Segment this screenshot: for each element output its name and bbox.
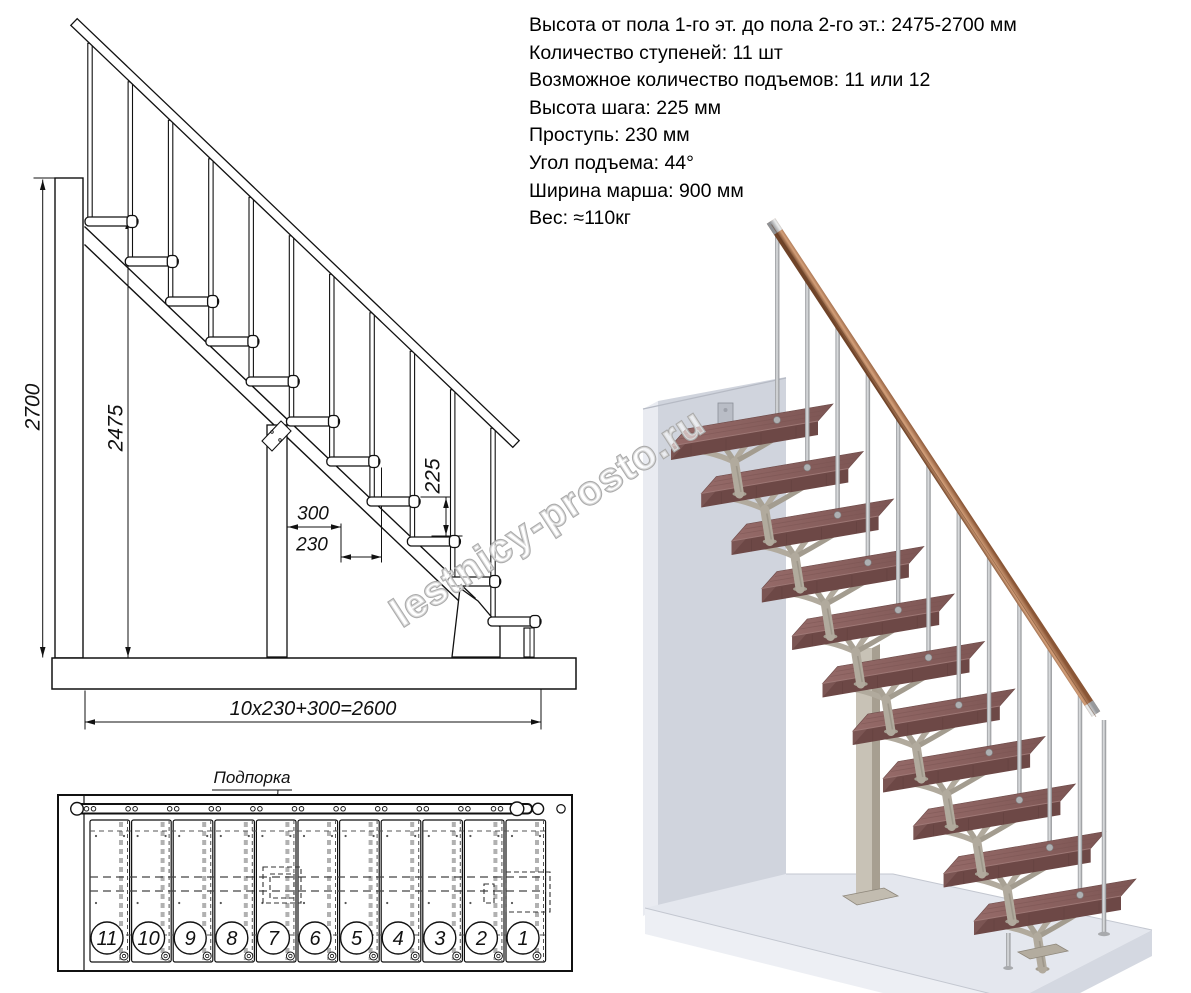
plan-step-numbers: 11 10 9 8 7 6 5 4 3 2 1 — [91, 922, 539, 954]
spec-line-tread-depth: Проступь: 230 мм — [529, 122, 1049, 150]
step — [246, 376, 299, 388]
dim-label-2700: 2700 — [22, 383, 45, 431]
baluster-3d — [957, 511, 961, 705]
baluster-3d — [987, 557, 991, 753]
spec-list: Высота от пола 1-го эт. до пола 2-го эт.… — [529, 12, 1049, 233]
step-number: 6 — [309, 928, 321, 950]
front-leg — [1006, 933, 1011, 967]
baluster-3d — [775, 234, 779, 420]
step — [407, 536, 460, 548]
floor-2d — [52, 658, 576, 689]
baluster-3d — [896, 419, 900, 610]
step-number: 1 — [517, 928, 528, 950]
render-3d — [643, 218, 1152, 993]
spec-line-step-count: Количество ступеней: 11 шт — [529, 40, 1049, 68]
step — [327, 456, 380, 468]
baluster-3d — [835, 327, 839, 515]
plan-view-drawing: Подпорка — [58, 768, 572, 971]
step — [166, 296, 219, 308]
step — [85, 216, 138, 228]
step-number: 5 — [351, 928, 363, 950]
support-label: Подпорка — [214, 768, 291, 787]
step — [206, 336, 259, 348]
dimension-rise: 225 — [421, 458, 462, 536]
baluster-3d — [805, 281, 809, 468]
page: 2700 2475 300 230 225 — [0, 0, 1191, 993]
support-column-2d — [267, 425, 287, 657]
step-number: 10 — [137, 928, 159, 950]
step-number: 4 — [393, 928, 404, 950]
step-number: 9 — [185, 928, 196, 950]
baluster-3d — [926, 465, 930, 658]
plan-handrail — [71, 802, 566, 816]
step-number: 3 — [434, 928, 445, 950]
step — [287, 416, 340, 428]
step — [367, 496, 420, 508]
step-number: 7 — [268, 928, 280, 950]
step — [125, 256, 178, 268]
dim-label-2475: 2475 — [105, 404, 128, 452]
spec-line-step-height: Высота шага: 225 мм — [529, 95, 1049, 123]
baluster-3d — [1048, 649, 1052, 848]
side-view-drawing: 2700 2475 300 230 225 — [22, 19, 577, 729]
dim-label-300: 300 — [297, 504, 329, 525]
dim-label-2600: 10x230+300=2600 — [230, 698, 397, 720]
spec-line-weight: Вес: ≈110кг — [529, 205, 1049, 233]
baluster-3d — [866, 373, 870, 563]
spec-line-width: Ширина марша: 900 мм — [529, 178, 1049, 206]
baluster-3d — [1078, 695, 1082, 895]
step-number: 11 — [97, 928, 118, 950]
step-number: 2 — [475, 928, 487, 950]
spec-line-angle: Угол подъема: 44° — [529, 150, 1049, 178]
dim-label-230: 230 — [295, 535, 328, 556]
dimension-total-height: 2700 — [22, 178, 57, 657]
step — [488, 616, 541, 628]
wall-post-2d — [55, 178, 83, 658]
baluster-3d — [1017, 603, 1021, 800]
spec-line-height-range: Высота от пола 1-го эт. до пола 2-го эт.… — [529, 12, 1049, 40]
balusters-2d — [88, 43, 495, 621]
dim-label-225: 225 — [422, 458, 445, 494]
step-number: 8 — [226, 928, 237, 950]
spec-line-rise-count: Возможное количество подъемов: 11 или 12 — [529, 67, 1049, 95]
